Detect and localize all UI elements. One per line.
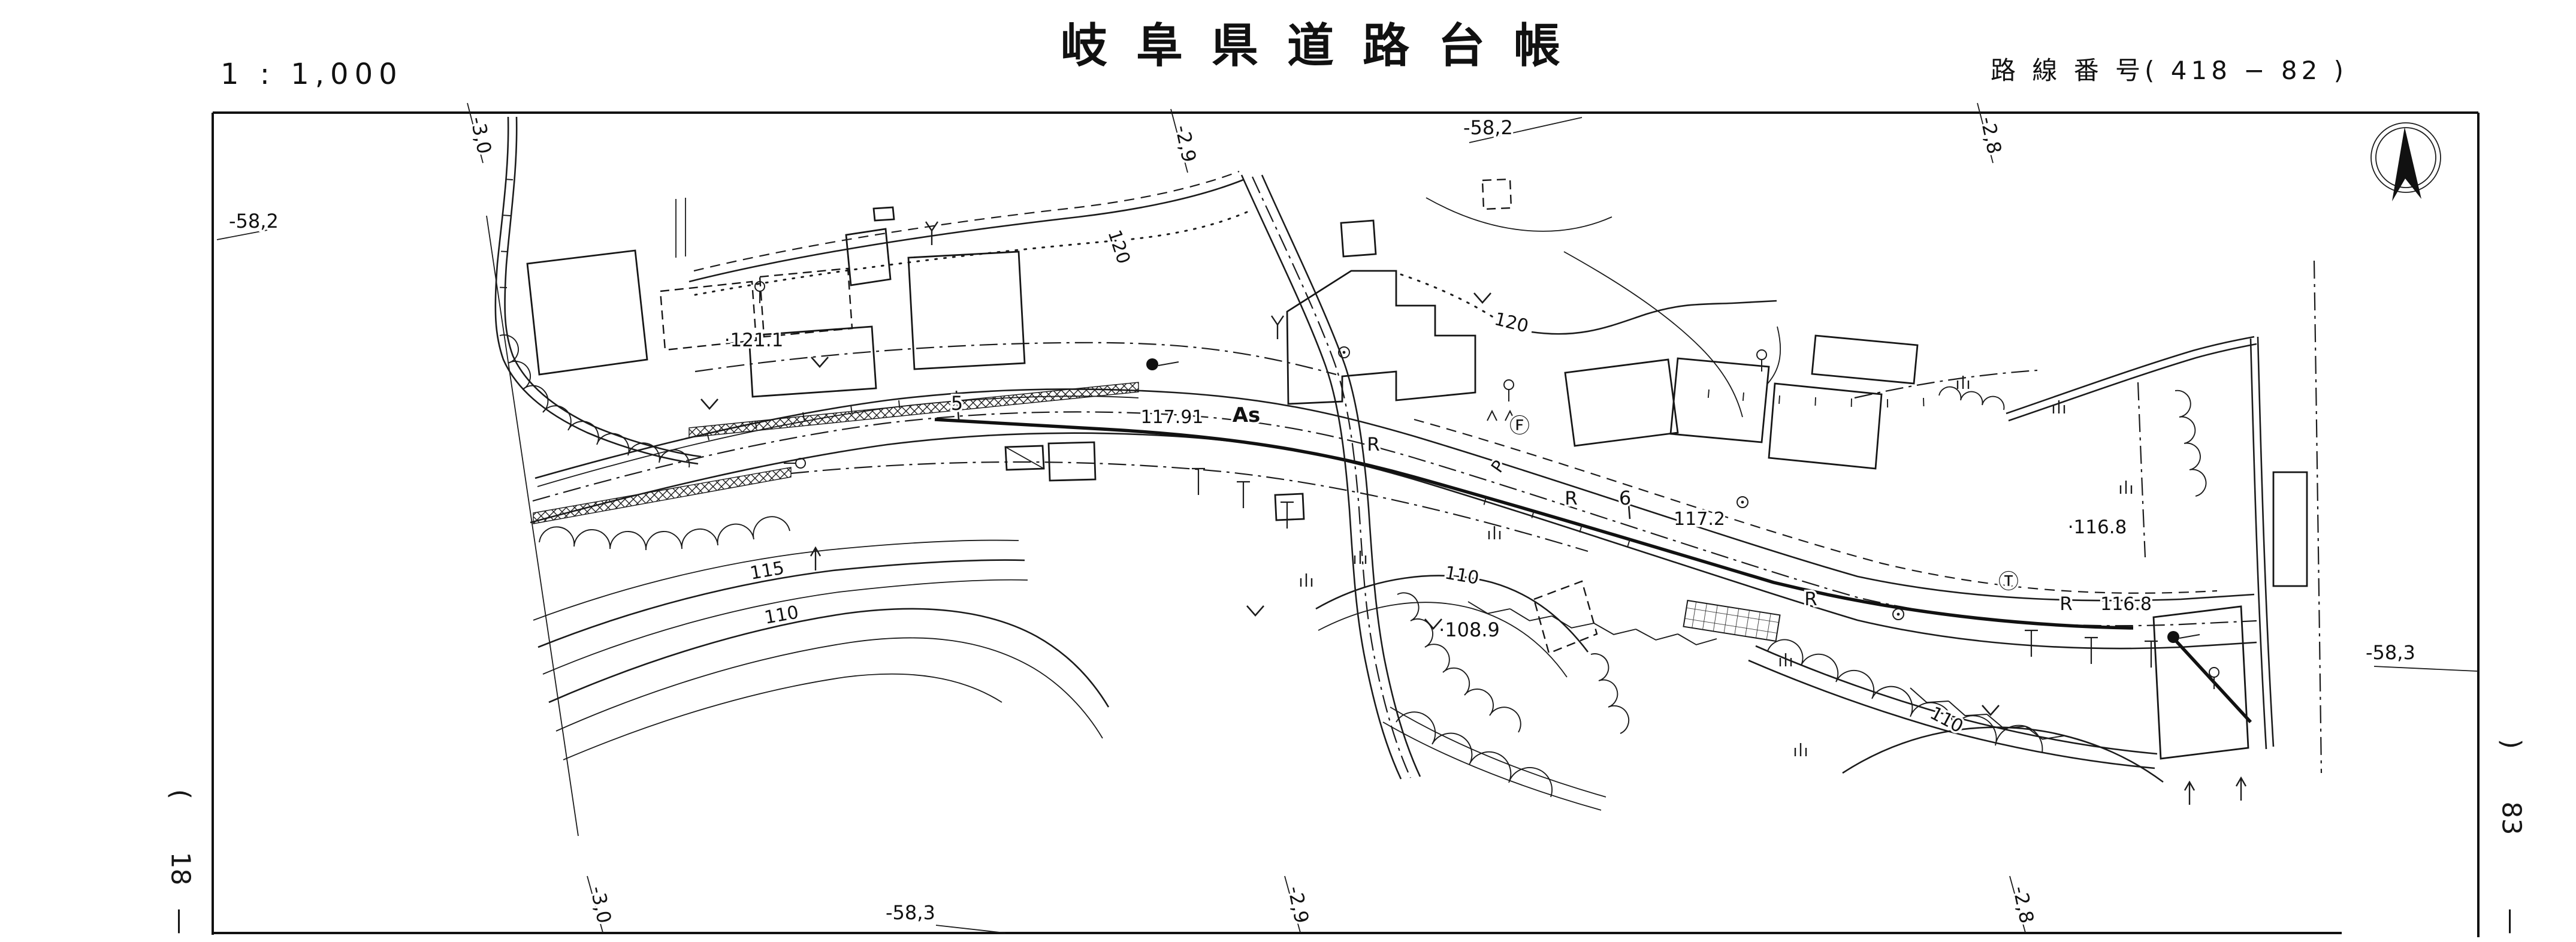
sheet-title: 岐阜県道路台帳 xyxy=(1061,8,1589,76)
bench-mark-p: P xyxy=(1487,457,1509,476)
grid-label-bottom-2-8: -2,8 xyxy=(2009,884,2039,925)
map-symbols xyxy=(701,222,2246,805)
map-scale: 1 : 1,000 xyxy=(221,58,403,91)
utility-pole-icon xyxy=(1504,380,1514,401)
grass-mark-icon xyxy=(1301,573,1312,587)
slope-and-hatch-marks xyxy=(500,179,2206,797)
grass-mark-icon xyxy=(1795,743,1806,756)
buildings xyxy=(527,179,2307,759)
slope-hatch xyxy=(1768,640,2042,753)
main-road xyxy=(530,343,2257,722)
survey-point-icon xyxy=(1893,609,1904,620)
slope-hatch xyxy=(1591,654,1629,733)
grid-label-bottom-58-3: -58,3 xyxy=(886,901,935,924)
right-sheet-bracket: ) xyxy=(2496,723,2527,765)
slope-hatch xyxy=(1397,593,1521,732)
drawing-frame xyxy=(213,113,2478,937)
grass-mark-icon xyxy=(1489,526,1500,539)
t-pole-icon xyxy=(2025,630,2038,657)
route-number: 路 線 番 号( 418 − 82 ) xyxy=(1991,50,2348,87)
spot-elevation-108-9: ·108.9 xyxy=(1439,618,1500,641)
road-elevation-117-91: 117.91 xyxy=(1141,407,1204,428)
road-elevation-117-2: 117.2 xyxy=(1674,509,1725,530)
grid-label-left-58-2: -58,2 xyxy=(229,210,279,233)
v-mark-icon xyxy=(811,357,828,367)
grid-label-right-58-3-leader xyxy=(2374,666,2477,671)
grid-label-top-3-0: -3,0 xyxy=(466,114,496,156)
contour-label-115: 115 xyxy=(748,557,786,584)
slope-hatch xyxy=(1396,712,1552,797)
t-pole-icon xyxy=(1237,482,1250,508)
upper-left-branch-road xyxy=(496,117,701,464)
roadside-code-r-2: R xyxy=(1565,488,1578,509)
v-mark-icon xyxy=(1474,293,1491,303)
contour-label-110-a: 110 xyxy=(763,602,800,628)
north-arrow-icon xyxy=(2371,123,2441,201)
road-ledger-sheet: -58,2-3,0-2,9-58,2-2,8-58,3-3,0-58,3-2,9… xyxy=(0,0,2576,942)
left-sheet-dash: — xyxy=(165,901,196,942)
grid-label-bottom-2-9: -2,9 xyxy=(1284,884,1313,925)
v-mark-icon xyxy=(701,399,718,409)
benchmark-dot-icon xyxy=(1146,358,1179,370)
roadside-code-r-3: R xyxy=(1804,588,1817,610)
slope-hatch xyxy=(1939,387,2004,410)
road-elevation-116-8: 116.8 xyxy=(2100,594,2152,615)
contour-label-110-b: 110 xyxy=(1443,562,1480,588)
grid-label-top-2-9: -2,9 xyxy=(1171,123,1201,164)
grass-mark-icon xyxy=(2121,481,2131,494)
y-pole-icon xyxy=(926,222,938,245)
spot-elevation-121-1: ·121.1 xyxy=(724,330,784,351)
survey-point-icon xyxy=(1737,497,1748,508)
grid-label-bottom-3-0: -3,0 xyxy=(586,884,616,925)
northeast-side-road xyxy=(1768,261,2321,773)
up-arrow-icon xyxy=(2185,782,2194,805)
grass-mark-icon xyxy=(1958,376,1968,389)
contour-label-120-b: 120 xyxy=(1492,309,1530,337)
spot-elevation-116-8: ·116.8 xyxy=(2068,517,2127,538)
left-sheet-bracket: ( xyxy=(165,774,196,816)
slope-hatch xyxy=(500,335,689,467)
map-drawing: -58,2-3,0-2,9-58,2-2,8-58,3-3,0-58,3-2,9… xyxy=(0,0,2576,942)
slope-hatch xyxy=(1708,390,1924,407)
grid-label-top-2-8: -2,8 xyxy=(1976,114,2006,156)
benchmark-dot-icon xyxy=(2167,631,2200,643)
roadside-code-r-4: R xyxy=(2059,593,2073,615)
right-sheet-number: 83 xyxy=(2496,798,2527,840)
grid-label-right-58-3: -58,3 xyxy=(2366,641,2415,664)
t-pole-icon xyxy=(1281,502,1294,529)
grass-mark-icon xyxy=(1355,551,1366,564)
grid-label-top-58-2: -58,2 xyxy=(1463,116,1513,139)
survey-mark-f: Ⓕ xyxy=(1509,414,1530,438)
y-pole-icon xyxy=(1272,316,1284,339)
station-number-5: 5 xyxy=(951,392,963,415)
survey-mark-t: Ⓣ xyxy=(1998,570,2019,594)
t-pole-icon xyxy=(2085,638,2098,664)
v-mark-icon xyxy=(1247,606,1264,615)
right-sheet-dash: — xyxy=(2496,901,2527,942)
t-pole-icon xyxy=(1192,469,1205,495)
station-number-6: 6 xyxy=(1619,487,1631,509)
caret-mark-icon xyxy=(1487,411,1497,421)
left-sheet-number: 18 xyxy=(165,848,196,890)
contour-label-120-a: 120 xyxy=(1104,227,1134,266)
roadside-code-r-1: R xyxy=(1367,434,1380,455)
slope-hatch xyxy=(2175,391,2206,496)
stream-channel xyxy=(1383,646,2157,810)
pavement-type-as: As xyxy=(1233,403,1261,427)
slope-hatch xyxy=(1468,602,1717,645)
slope-hatch xyxy=(539,517,790,550)
utility-pole-icon xyxy=(1757,350,1766,372)
v-mark-icon xyxy=(1982,705,1999,715)
up-arrow-icon xyxy=(2236,778,2246,801)
